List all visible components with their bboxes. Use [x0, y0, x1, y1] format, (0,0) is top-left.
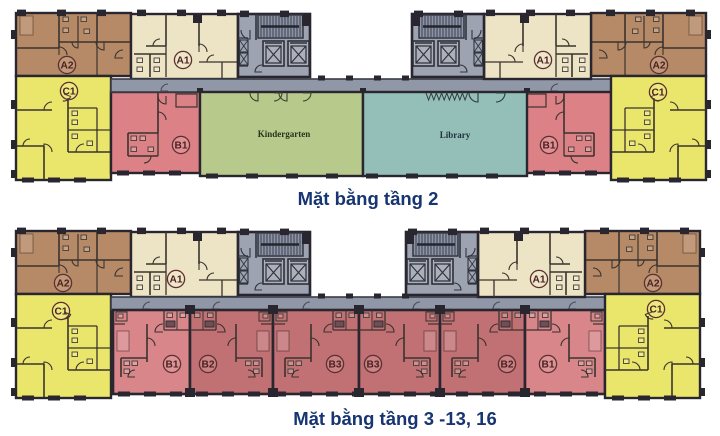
svg-text:C1: C1: [651, 88, 664, 99]
svg-text:Mặt bằng tầng 3 -13, 16: Mặt bằng tầng 3 -13, 16: [293, 408, 497, 429]
svg-text:B3: B3: [366, 360, 379, 371]
svg-text:B2: B2: [201, 360, 214, 371]
svg-text:A2: A2: [60, 61, 73, 72]
svg-text:B1: B1: [541, 360, 554, 371]
svg-text:C1: C1: [54, 307, 67, 318]
svg-text:Library: Library: [440, 130, 471, 140]
svg-text:A2: A2: [646, 279, 659, 290]
svg-text:A1: A1: [536, 56, 549, 67]
svg-text:B1: B1: [174, 141, 187, 152]
svg-text:C1: C1: [62, 87, 75, 98]
svg-text:A2: A2: [652, 61, 665, 72]
svg-text:A1: A1: [169, 275, 182, 286]
svg-text:Kindergarten: Kindergarten: [258, 129, 311, 139]
svg-text:B1: B1: [542, 141, 555, 152]
svg-text:C1: C1: [649, 305, 662, 316]
svg-text:Mặt bằng tầng 2: Mặt bằng tầng 2: [298, 188, 439, 209]
svg-text:B3: B3: [328, 360, 341, 371]
svg-text:B1: B1: [165, 360, 178, 371]
svg-text:A2: A2: [56, 279, 69, 290]
svg-text:A1: A1: [532, 275, 545, 286]
svg-text:A1: A1: [176, 56, 189, 67]
svg-text:B2: B2: [500, 360, 513, 371]
